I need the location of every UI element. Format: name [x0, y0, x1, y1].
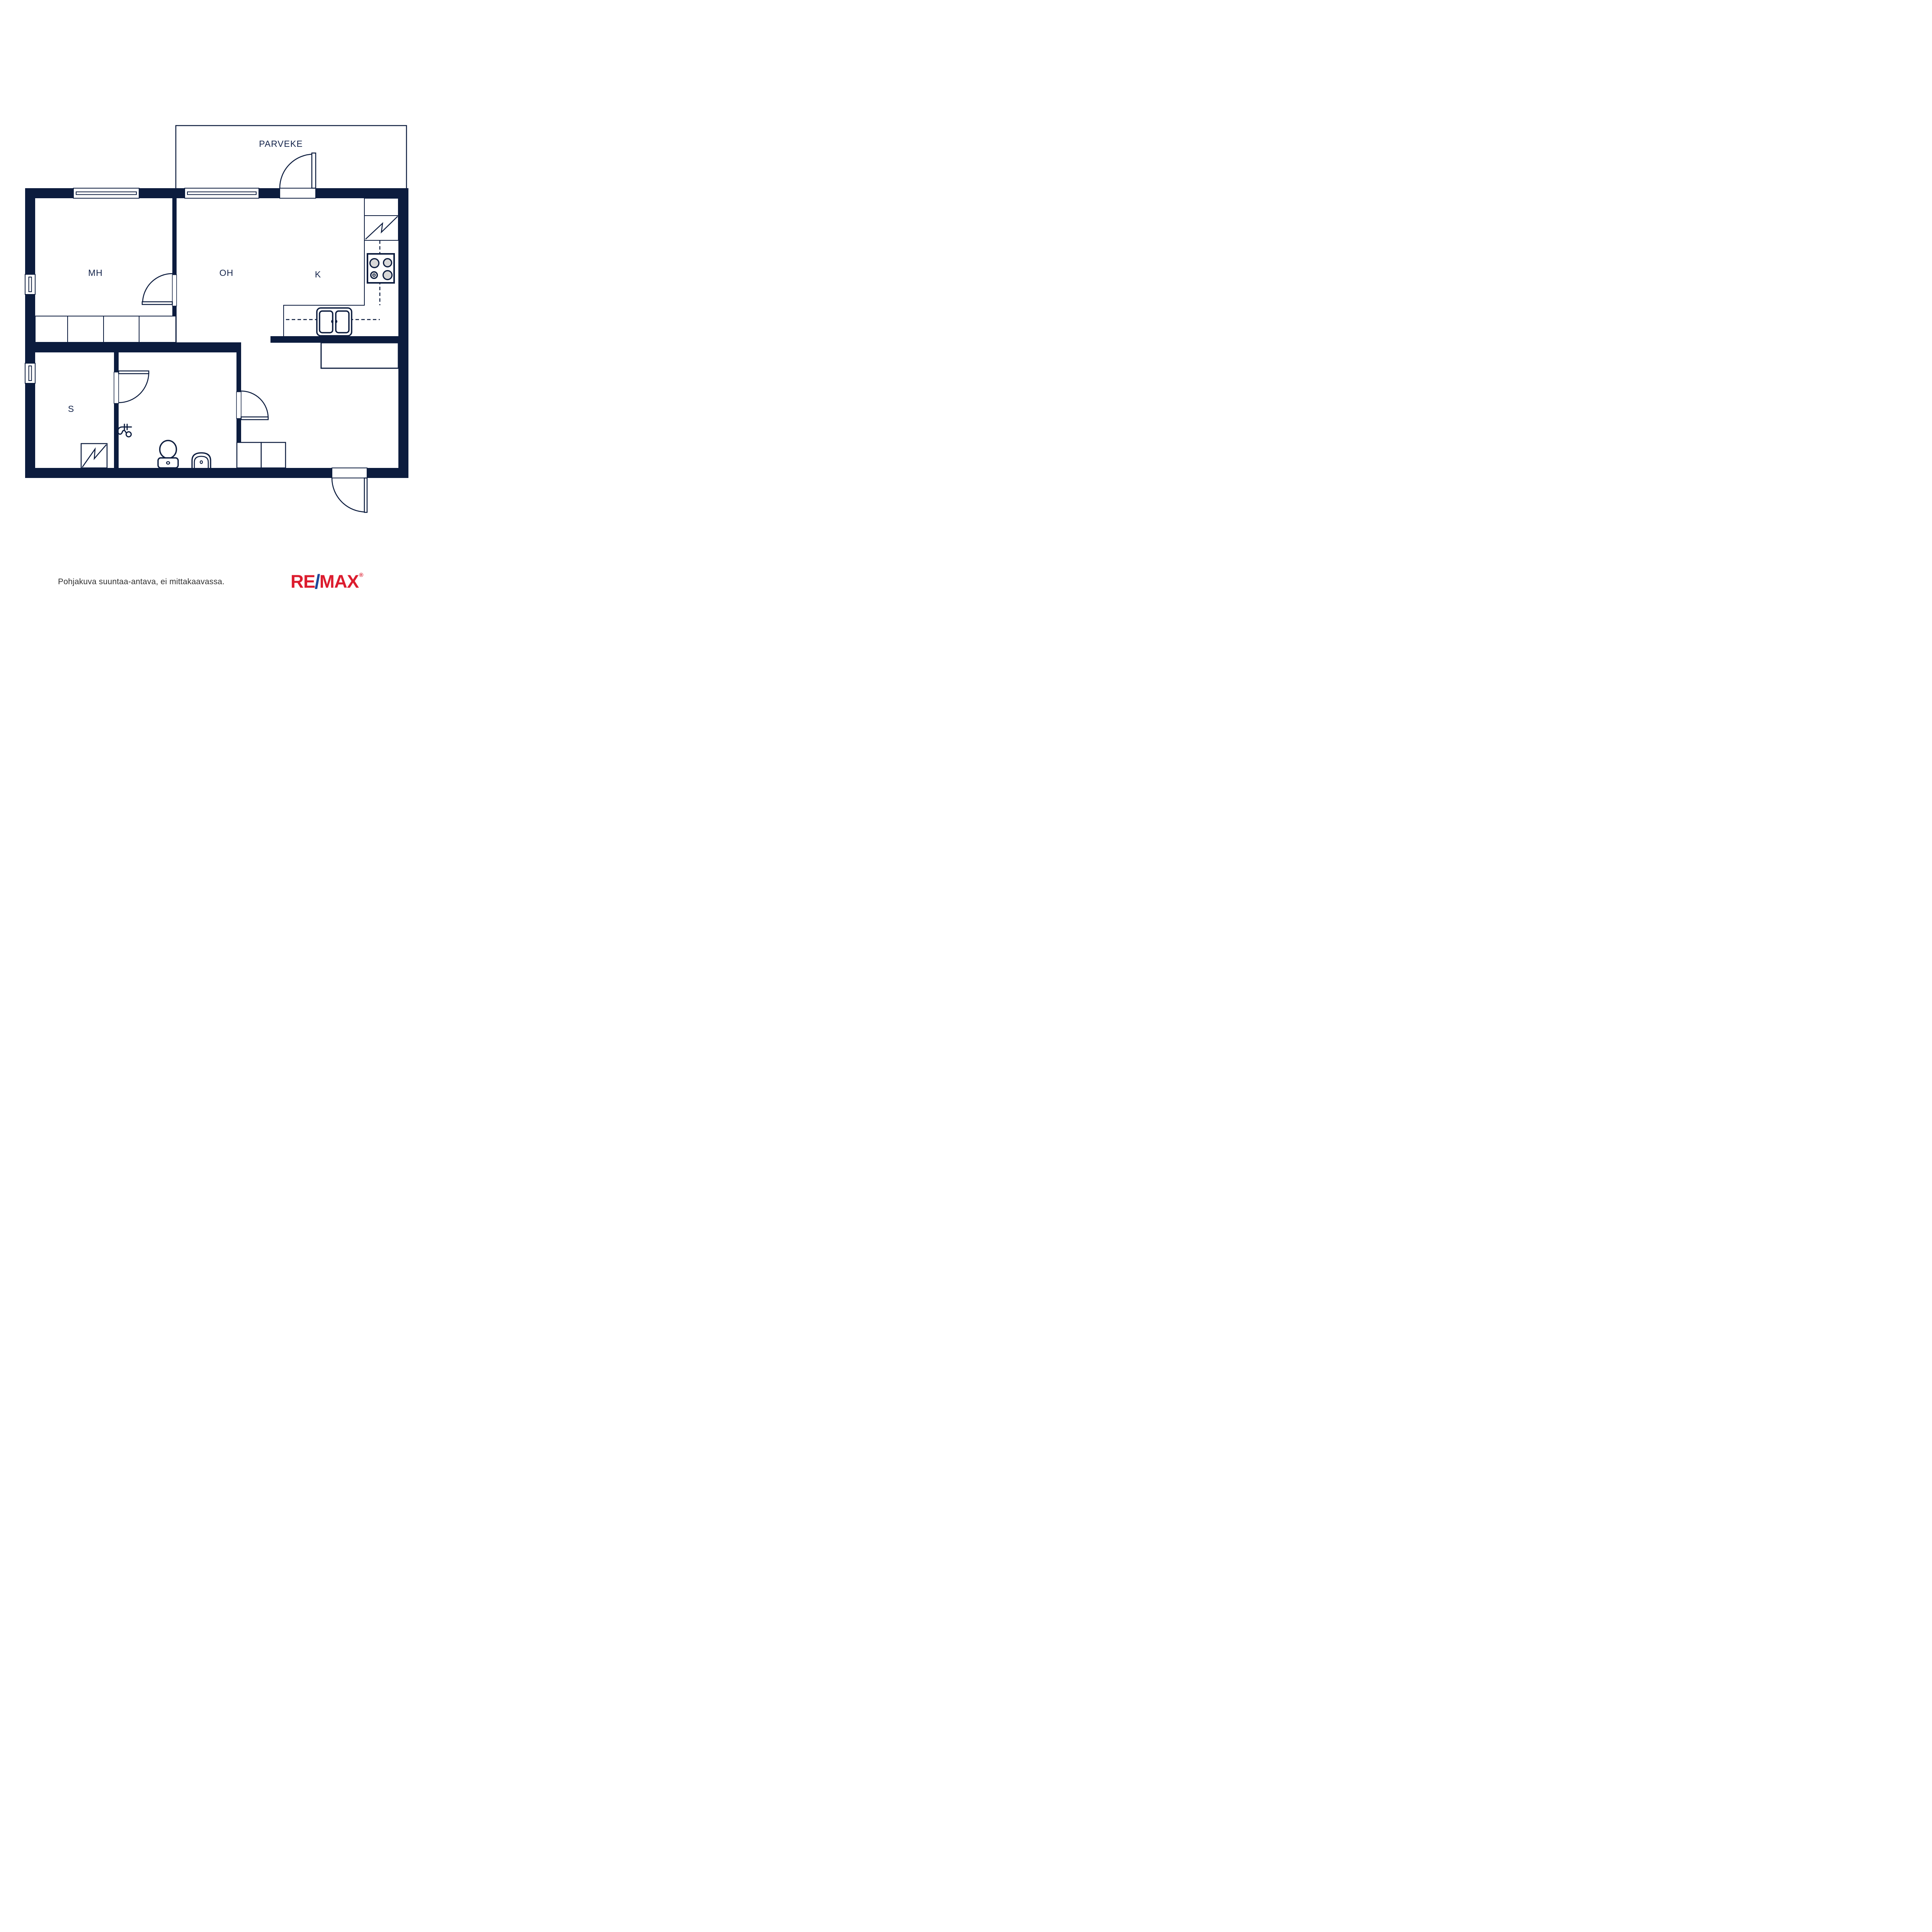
balcony-door — [280, 153, 316, 198]
washbasin — [192, 453, 211, 468]
bedroom-door — [142, 274, 177, 306]
window-bedroom-left — [25, 274, 35, 294]
label-kitchen: K — [315, 269, 321, 279]
kitchen-sink — [317, 308, 352, 336]
burner-top-left — [370, 259, 379, 268]
hall-wardrobe — [321, 343, 398, 368]
wall-sauna-bath — [114, 352, 119, 468]
label-bedroom: MH — [88, 268, 103, 278]
toilet — [158, 440, 178, 468]
shower-faucet-icon — [118, 424, 131, 437]
sink-faucet-hole-right — [335, 320, 337, 323]
label-living-room: OH — [219, 268, 234, 278]
sauna-bath-door — [114, 371, 149, 403]
floor-plan-page: PARVEKE MH OH K S Pohjakuva suuntaa-anta… — [0, 0, 425, 601]
kitchen-upper-cabinet — [364, 198, 398, 216]
window-sauna-left — [25, 363, 35, 383]
burner-bottom-right — [383, 271, 392, 280]
kitchen-fridge — [364, 216, 398, 240]
wall-right — [398, 188, 408, 478]
bath-hall-door — [236, 391, 268, 420]
sink-faucet-hole-left — [331, 320, 333, 323]
hall-closets — [237, 442, 286, 468]
wall-kitchen-half — [270, 336, 398, 343]
remax-logo-re: RE — [291, 571, 315, 592]
window-bedroom-top — [73, 188, 139, 198]
registered-trademark-icon: ® — [359, 572, 363, 578]
balcony-outline — [176, 126, 406, 188]
toilet-flush-button — [167, 462, 170, 464]
bedroom-closets — [35, 316, 176, 342]
disclaimer-text: Pohjakuva suuntaa-antava, ei mittakaavas… — [58, 577, 224, 587]
label-sauna: S — [68, 404, 74, 414]
entrance-door — [332, 468, 367, 512]
remax-logo-slash: / — [315, 572, 320, 592]
remax-logo-max: MAX — [320, 571, 359, 592]
sauna-heater — [81, 444, 107, 468]
floor-plan: PARVEKE MH OH K S — [0, 0, 425, 601]
remax-logo: RE/MAX® — [291, 571, 363, 591]
stove — [367, 254, 394, 283]
washbasin-drain — [200, 461, 202, 464]
windows — [25, 188, 259, 383]
label-balcony: PARVEKE — [259, 139, 303, 149]
wall-middle — [25, 342, 241, 352]
burner-top-right — [384, 259, 392, 267]
window-living-top — [185, 188, 259, 198]
burner-bottom-left-dot — [373, 274, 375, 276]
wall-left — [25, 188, 35, 478]
